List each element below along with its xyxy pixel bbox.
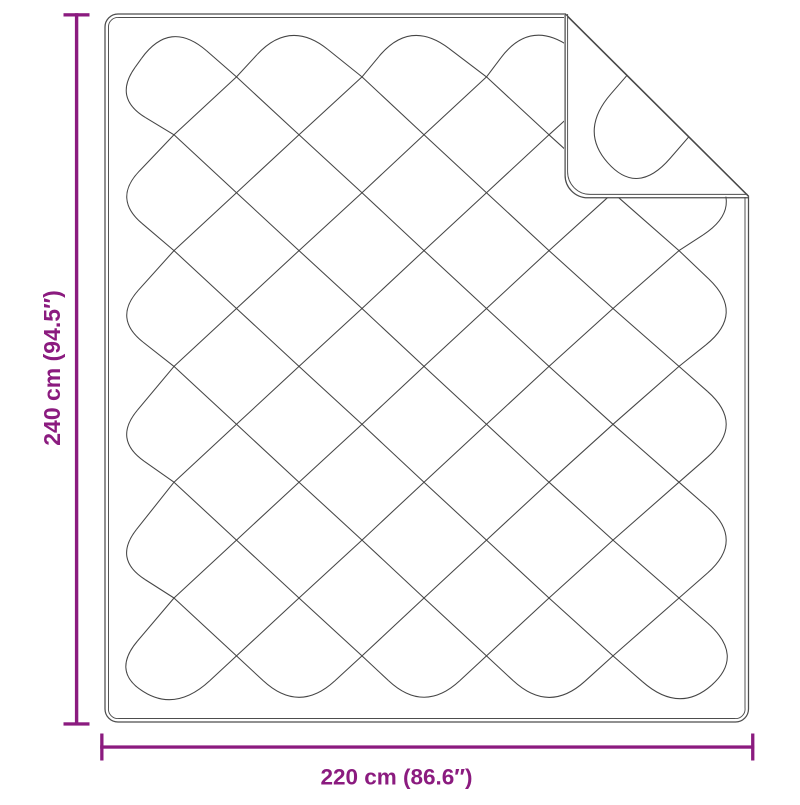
svg-text:240 cm (94.5″): 240 cm (94.5″) bbox=[39, 290, 65, 446]
svg-text:220 cm (86.6″): 220 cm (86.6″) bbox=[320, 765, 472, 790]
